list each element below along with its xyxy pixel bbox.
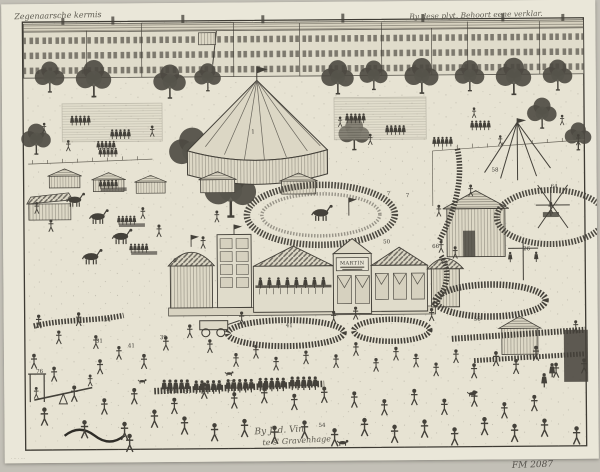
scanned-print: MARTIN	[0, 0, 600, 472]
catalog-number: FM 2087	[511, 460, 554, 471]
mat-annotations: FM 2087	[0, 0, 600, 472]
